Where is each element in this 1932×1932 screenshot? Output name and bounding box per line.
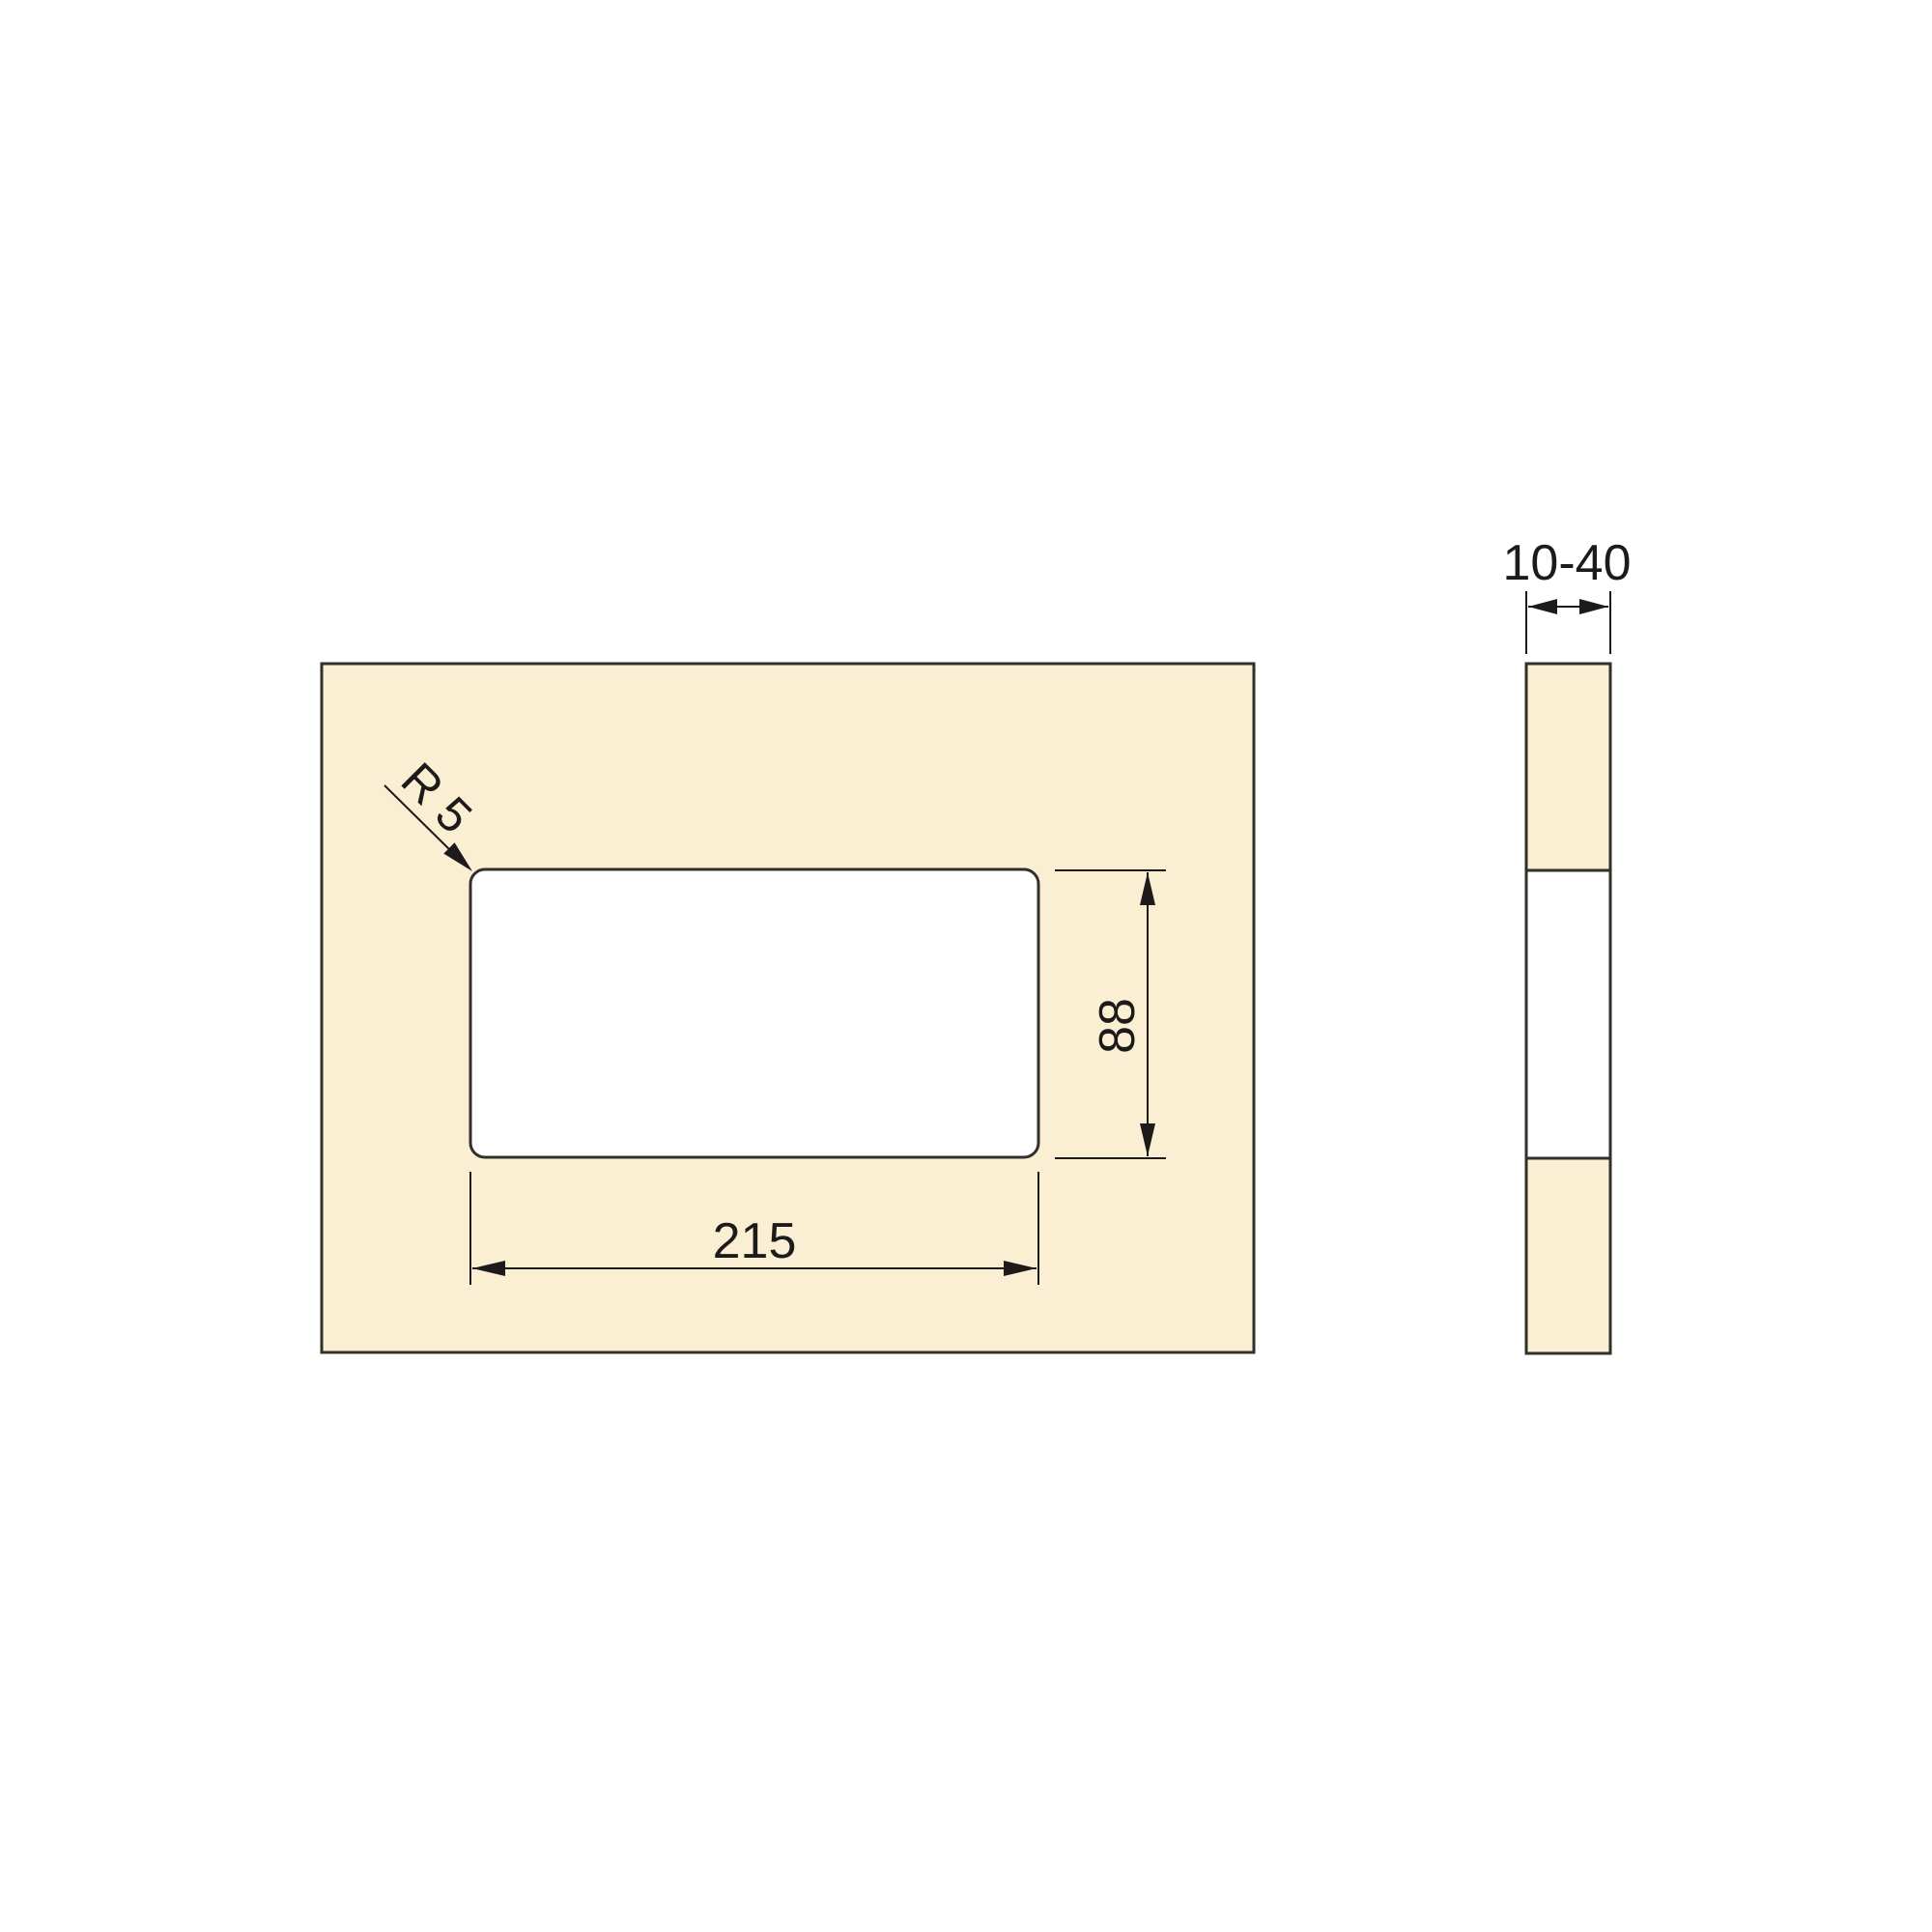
side-view-cutout-section xyxy=(1526,870,1610,1158)
arrowhead-left xyxy=(1528,599,1557,614)
technical-drawing: R 5 88 215 xyxy=(0,0,1932,1932)
thickness-dimension-label: 10-40 xyxy=(1503,535,1632,591)
arrowhead-right xyxy=(1579,599,1608,614)
side-view-bottom-section xyxy=(1526,1158,1610,1353)
height-dimension-label: 88 xyxy=(1090,998,1146,1054)
side-view: 10-40 xyxy=(1503,535,1632,1353)
width-dimension-label: 215 xyxy=(713,1213,797,1269)
thickness-dimension: 10-40 xyxy=(1503,535,1632,654)
front-view: R 5 88 215 xyxy=(322,664,1254,1352)
panel-cutout xyxy=(470,869,1038,1157)
side-view-top-section xyxy=(1526,664,1610,870)
drawing-canvas: R 5 88 215 xyxy=(0,0,1932,1932)
